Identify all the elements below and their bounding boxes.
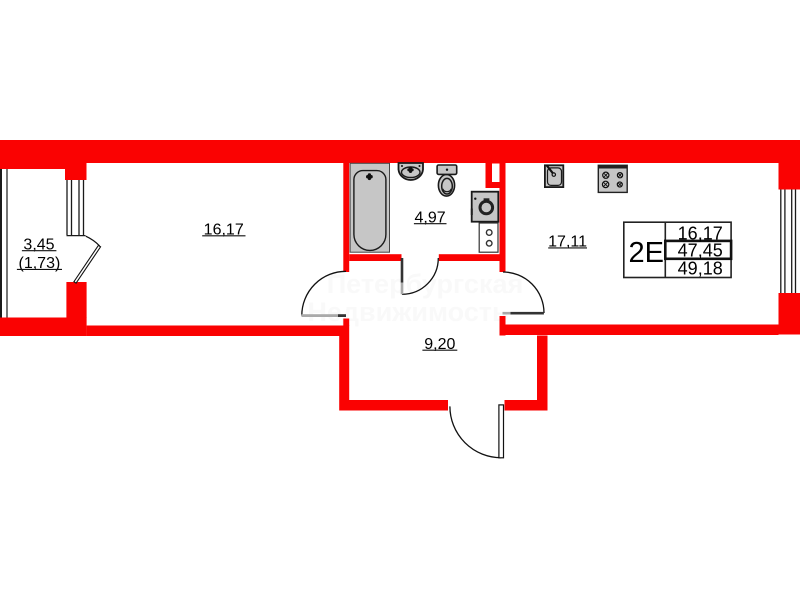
svg-text:49,18: 49,18 bbox=[678, 258, 723, 278]
svg-text:Недвижимость: Недвижимость bbox=[307, 297, 508, 327]
svg-text:Петербургская: Петербургская bbox=[327, 269, 523, 299]
svg-text:2E: 2E bbox=[629, 237, 664, 269]
